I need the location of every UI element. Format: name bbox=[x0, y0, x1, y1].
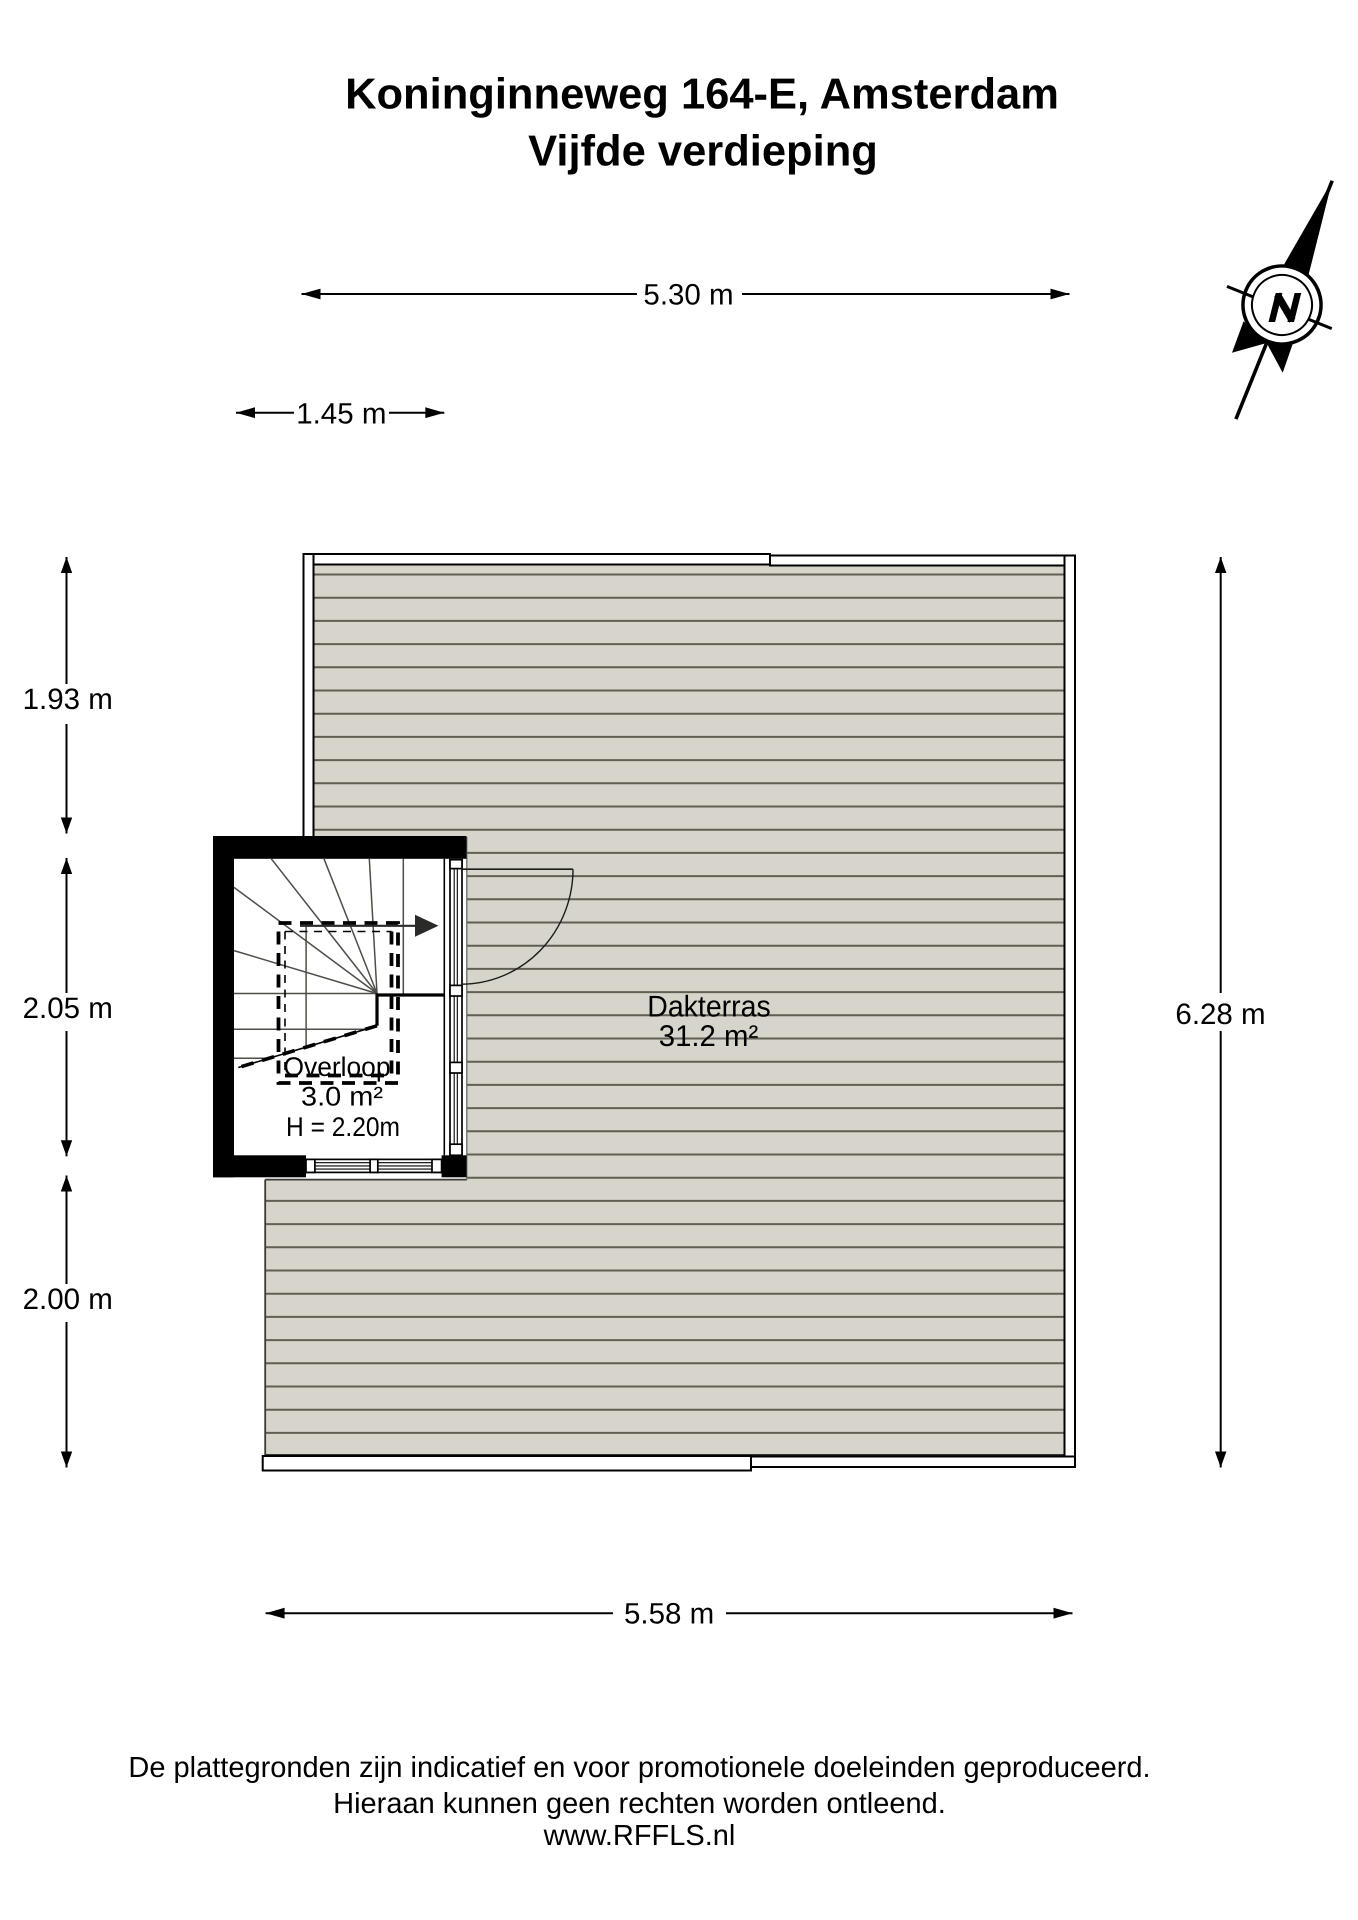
svg-text:5.30 m: 5.30 m bbox=[643, 279, 733, 312]
svg-text:6.28 m: 6.28 m bbox=[1175, 998, 1265, 1031]
svg-text:De plattegronden zijn indicati: De plattegronden zijn indicatief en voor… bbox=[128, 1752, 1150, 1784]
svg-text:2.00 m: 2.00 m bbox=[23, 1283, 113, 1316]
svg-text:31.2 m²: 31.2 m² bbox=[659, 1020, 759, 1053]
svg-text:Hieraan kunnen geen rechten wo: Hieraan kunnen geen rechten worden ontle… bbox=[333, 1788, 946, 1820]
svg-text:2.05 m: 2.05 m bbox=[23, 992, 113, 1025]
svg-text:5.58 m: 5.58 m bbox=[624, 1597, 714, 1630]
svg-text:1.93 m: 1.93 m bbox=[23, 683, 113, 716]
svg-text:www.RFFLS.nl: www.RFFLS.nl bbox=[543, 1820, 736, 1852]
svg-text:Dakterras: Dakterras bbox=[647, 991, 771, 1024]
svg-text:H = 2.20m: H = 2.20m bbox=[286, 1112, 400, 1142]
svg-text:Vijfde verdieping: Vijfde verdieping bbox=[528, 128, 878, 176]
svg-text:3.0 m²: 3.0 m² bbox=[301, 1081, 383, 1111]
svg-text:1.45 m: 1.45 m bbox=[296, 397, 386, 430]
svg-text:Overloop: Overloop bbox=[284, 1052, 391, 1082]
svg-text:Koninginneweg 164-E, Amsterdam: Koninginneweg 164-E, Amsterdam bbox=[345, 71, 1059, 119]
